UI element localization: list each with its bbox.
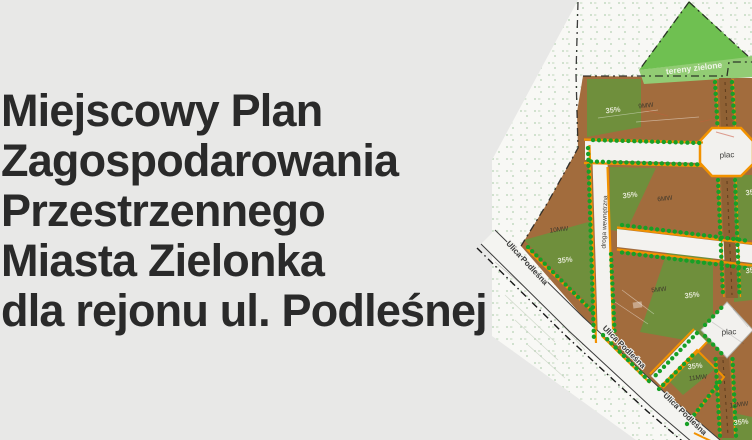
coverage-label: 35%: [557, 255, 573, 266]
plaza-label-2: plac: [721, 327, 736, 337]
plaza-label-1: plac: [719, 150, 734, 160]
coverage-label: 35%: [605, 105, 621, 116]
zoning-map-graphic: tereny zielone 35% 9MW plac 35% 35% 6MW …: [0, 0, 752, 440]
coverage-label: 35%: [745, 265, 752, 276]
coverage-label: 35%: [687, 361, 703, 372]
banner: Miejscowy Plan Zagospodarowania Przestrz…: [0, 0, 752, 440]
coverage-label: 35%: [622, 190, 638, 201]
coverage-label: 35%: [745, 187, 752, 198]
coverage-label: 35%: [684, 290, 700, 301]
coverage-label: 35%: [733, 417, 749, 428]
